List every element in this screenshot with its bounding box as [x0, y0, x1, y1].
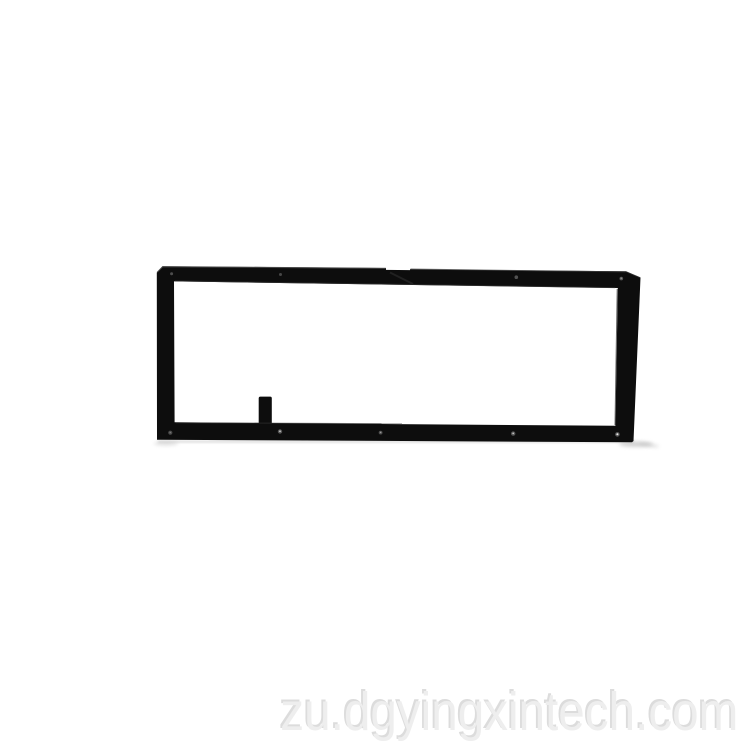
svg-text:zu.dgyingxintech.com: zu.dgyingxintech.com [280, 682, 738, 742]
